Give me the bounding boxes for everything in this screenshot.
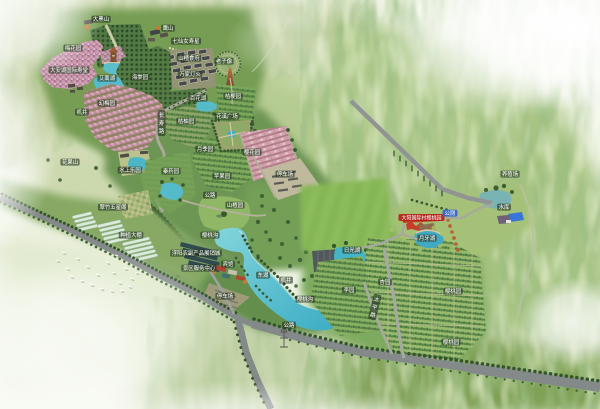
svg-text:幻梅园: 幻梅园 bbox=[99, 99, 115, 107]
svg-text:桔柚园: 桔柚园 bbox=[178, 117, 194, 125]
svg-text:山楂园: 山楂园 bbox=[227, 201, 243, 209]
svg-text:机井: 机井 bbox=[281, 276, 292, 284]
svg-text:路: 路 bbox=[159, 127, 165, 135]
svg-text:海棠园: 海棠园 bbox=[132, 73, 148, 81]
svg-text:宾馆: 宾馆 bbox=[223, 260, 234, 268]
svg-text:水上乐园: 水上乐园 bbox=[119, 166, 141, 174]
svg-text:水库: 水库 bbox=[499, 203, 510, 211]
svg-text:长: 长 bbox=[159, 111, 165, 119]
svg-text:大安湖国际寿堂: 大安湖国际寿堂 bbox=[50, 66, 88, 74]
svg-text:公路: 公路 bbox=[284, 321, 295, 329]
svg-text:大黑山: 大黑山 bbox=[93, 15, 109, 23]
svg-text:日光湖: 日光湖 bbox=[344, 246, 360, 254]
svg-text:李园: 李园 bbox=[344, 286, 355, 294]
svg-text:停车场: 停车场 bbox=[217, 292, 234, 300]
svg-text:养殖场: 养殖场 bbox=[502, 170, 519, 178]
svg-text:老子像: 老子像 bbox=[216, 57, 233, 65]
svg-text:翠竹五星阁: 翠竹五星阁 bbox=[100, 203, 127, 211]
svg-text:杏园: 杏园 bbox=[380, 278, 391, 286]
svg-text:桔梗园: 桔梗园 bbox=[225, 92, 241, 100]
svg-text:月季园: 月季园 bbox=[197, 145, 213, 153]
svg-text:寿: 寿 bbox=[159, 119, 165, 127]
svg-text:公路: 公路 bbox=[205, 191, 216, 199]
svg-text:艾蒿湖: 艾蒿湖 bbox=[99, 74, 115, 82]
svg-text:种植大棚: 种植大棚 bbox=[120, 231, 142, 239]
svg-text:山楂食府: 山楂食府 bbox=[178, 54, 200, 62]
svg-text:花果山: 花果山 bbox=[62, 158, 78, 166]
svg-text:苹果园: 苹果园 bbox=[214, 172, 230, 180]
svg-text:秦药园: 秦药园 bbox=[163, 167, 179, 175]
svg-text:浮阳农副产品展销城: 浮阳农副产品展销城 bbox=[172, 249, 221, 257]
svg-text:樱花园: 樱花园 bbox=[244, 148, 260, 156]
svg-text:机井: 机井 bbox=[77, 108, 88, 116]
svg-text:公厕: 公厕 bbox=[445, 210, 456, 217]
svg-text:东湖: 东湖 bbox=[258, 271, 269, 279]
svg-text:月牙湖: 月牙湖 bbox=[419, 234, 435, 242]
svg-text:樱桃园: 樱桃园 bbox=[445, 287, 461, 295]
svg-text:百花湖: 百花湖 bbox=[190, 94, 206, 102]
svg-text:鹰山: 鹰山 bbox=[163, 24, 174, 32]
svg-text:停车场: 停车场 bbox=[277, 170, 294, 178]
svg-text:七仙女寿星: 七仙女寿星 bbox=[173, 37, 201, 45]
svg-text:樱桃沟: 樱桃沟 bbox=[297, 295, 313, 303]
svg-text:景区服务中心: 景区服务中心 bbox=[183, 264, 216, 272]
svg-text:花溪广场: 花溪广场 bbox=[216, 112, 238, 120]
svg-text:万家灯火: 万家灯火 bbox=[179, 70, 201, 78]
svg-text:大阳国际村樱桃园: 大阳国际村樱桃园 bbox=[401, 215, 441, 222]
svg-text:樱桃园: 樱桃园 bbox=[443, 338, 459, 346]
svg-text:梅花园: 梅花园 bbox=[65, 44, 81, 52]
svg-text:樱桃沟: 樱桃沟 bbox=[202, 231, 218, 239]
